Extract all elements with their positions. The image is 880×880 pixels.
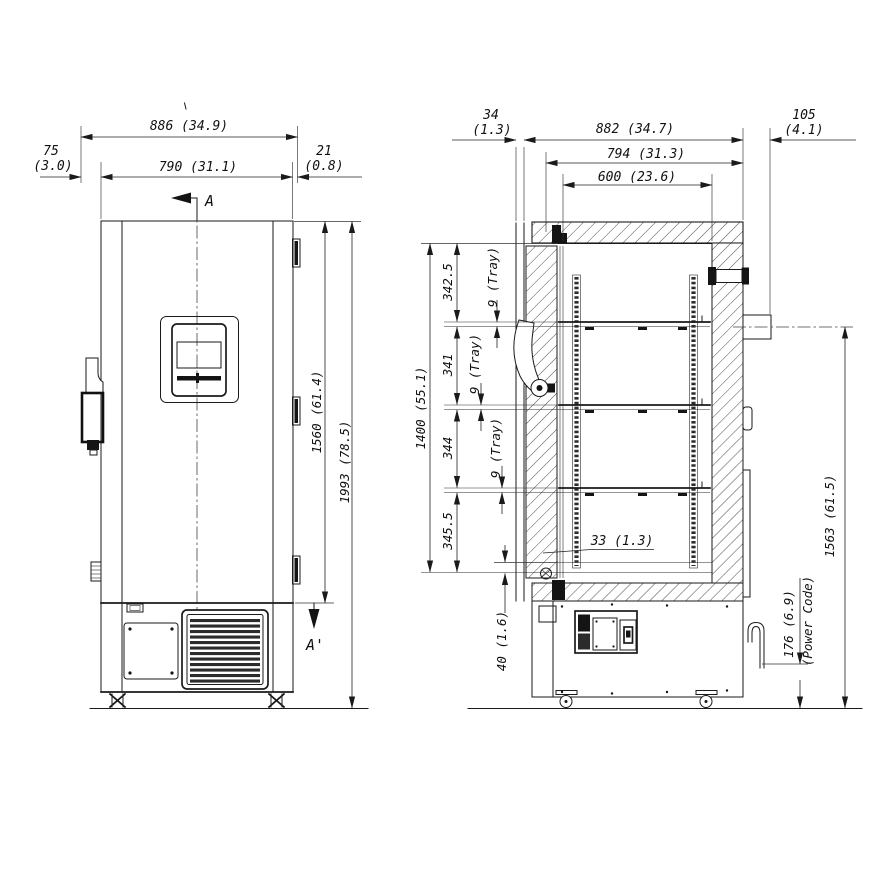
dim-depth-chamber: 600 (23.6) xyxy=(598,170,676,185)
svg-text:A: A xyxy=(204,192,214,210)
door-bottom-gasket xyxy=(552,580,565,600)
back-wall xyxy=(712,243,743,583)
dim-height-total: 1993 (78.5) xyxy=(337,421,352,504)
label-power-cord: (Power Code) xyxy=(800,576,815,666)
front-casters xyxy=(110,694,284,707)
svg-text:(0.8): (0.8) xyxy=(304,159,343,174)
dim-tray-2: 9 (Tray) xyxy=(467,334,482,394)
dim-tray-1: 9 (Tray) xyxy=(485,247,500,307)
tray-3 xyxy=(559,482,710,496)
dim-rear-clearance: 105 xyxy=(792,108,816,123)
dim-port-height: 1563 (61.5) xyxy=(822,475,837,558)
control-panel xyxy=(161,317,239,403)
louver-grille xyxy=(182,610,268,689)
tray-1 xyxy=(559,316,710,330)
dim-handle-depth: 75 xyxy=(43,144,59,159)
side-dimensions: 34 (1.3) 882 (34.7) 794 (31.3) 600 (23.6… xyxy=(413,108,856,708)
door-handle xyxy=(82,358,103,455)
side-port-knob xyxy=(91,562,101,581)
dim-seg-4: 345.5 xyxy=(440,512,455,551)
dim-height-door: 1560 (61.4) xyxy=(309,371,324,454)
dim-hinge-depth: 21 xyxy=(316,144,332,159)
access-port xyxy=(708,267,749,285)
center-mark xyxy=(185,103,187,109)
dim-door-front: 34 xyxy=(482,108,499,123)
technical-drawing: 886 (34.9) 790 (31.1) 75 (3.0) 21 (0.8) … xyxy=(0,0,880,880)
section-marker-a-prime: A' xyxy=(305,603,324,654)
freezer-dimension-drawing: 886 (34.9) 790 (31.1) 75 (3.0) 21 (0.8) … xyxy=(0,0,880,880)
dim-cord-height: 176 (6.9) xyxy=(781,590,796,658)
machine-compartment-side xyxy=(532,601,764,708)
dim-seg-1: 342.5 xyxy=(440,263,455,302)
door-edge-leader xyxy=(543,550,654,554)
side-casters xyxy=(556,691,717,708)
dim-depth-body: 882 (34.7) xyxy=(596,122,674,137)
dim-depth-inner: 794 (31.3) xyxy=(607,147,685,162)
svg-text:(3.0): (3.0) xyxy=(33,159,72,174)
access-panel xyxy=(124,623,178,679)
electrical-panel xyxy=(575,611,637,653)
door-hinges xyxy=(293,239,301,584)
dim-interior-height: 1400 (55.1) xyxy=(413,367,428,450)
dim-bottom-gap: 40 (1.6) xyxy=(494,611,509,671)
dim-door-edge: 33 (1.3) xyxy=(590,534,654,549)
section-marker-a: A xyxy=(171,192,214,220)
rear-strip xyxy=(743,470,750,597)
power-cord-hook xyxy=(748,623,764,669)
tray-2 xyxy=(559,399,710,413)
svg-text:A': A' xyxy=(305,636,324,654)
rear-bump xyxy=(743,407,752,430)
dim-seg-3: 344 xyxy=(440,437,455,461)
dim-seg-2: 341 xyxy=(440,354,455,378)
svg-text:(4.1): (4.1) xyxy=(784,123,823,138)
display-screen xyxy=(177,342,221,368)
svg-text:(1.3): (1.3) xyxy=(472,123,511,138)
shelf-rails xyxy=(573,275,698,568)
dim-tray-3: 9 (Tray) xyxy=(488,418,503,478)
dim-width-total: 886 (34.9) xyxy=(150,119,228,134)
machine-compartment-front xyxy=(101,603,293,692)
door-section xyxy=(516,223,567,601)
dim-width-body: 790 (31.1) xyxy=(159,160,237,175)
